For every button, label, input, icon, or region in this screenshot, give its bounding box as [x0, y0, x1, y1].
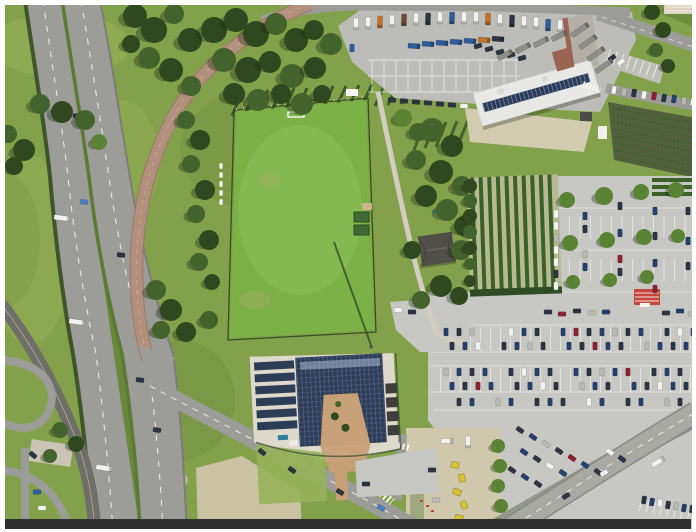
white-van [598, 126, 607, 139]
car [470, 368, 475, 376]
truck [389, 15, 394, 27]
car [424, 100, 432, 105]
car [684, 382, 689, 390]
car [574, 328, 579, 336]
truck-cab [450, 439, 453, 444]
mast-base [369, 345, 372, 348]
truck [437, 12, 442, 24]
tree [668, 182, 684, 198]
tree [199, 230, 219, 250]
car [33, 490, 41, 495]
car [645, 382, 650, 390]
tree [159, 58, 183, 82]
car [450, 342, 455, 350]
tree [463, 179, 477, 193]
car [574, 368, 579, 376]
vineyard-mid [466, 174, 562, 296]
tree [52, 422, 68, 438]
car [388, 97, 396, 102]
tree [164, 4, 184, 24]
car [583, 225, 588, 233]
tree [430, 275, 452, 297]
truck [533, 17, 538, 29]
truck-cab [466, 445, 471, 448]
car [476, 382, 481, 390]
truck [464, 38, 476, 44]
tree [160, 299, 182, 321]
bench [219, 181, 222, 186]
white-hut [346, 89, 358, 96]
bench [219, 172, 222, 177]
tree [441, 135, 463, 157]
tree [200, 311, 218, 329]
car [476, 342, 481, 350]
soccer-pitch [228, 97, 376, 349]
truck [436, 40, 448, 46]
tree [463, 209, 477, 223]
car [528, 382, 533, 390]
tree [562, 235, 578, 251]
car [457, 368, 462, 376]
tree [394, 109, 412, 127]
tree [75, 110, 95, 130]
tree [655, 22, 671, 38]
truck [441, 439, 453, 444]
tree [412, 291, 430, 309]
tree [30, 94, 50, 114]
truck-cab [485, 22, 490, 25]
car [686, 207, 691, 215]
tree [450, 287, 468, 305]
car [554, 270, 559, 278]
tree [636, 229, 652, 245]
car [600, 328, 605, 336]
satellite-map-canvas[interactable] [0, 0, 696, 532]
truck [485, 13, 490, 25]
car [153, 427, 162, 433]
tree [43, 449, 57, 463]
car [632, 382, 637, 390]
truck-cab [557, 29, 562, 32]
truck [408, 43, 420, 49]
car [613, 328, 618, 336]
car [676, 309, 684, 314]
tree [304, 20, 324, 40]
car [509, 328, 514, 336]
tree [247, 89, 269, 111]
truck-cab [437, 21, 442, 24]
tree [265, 13, 287, 35]
car [522, 368, 527, 376]
tree [599, 232, 615, 248]
car [444, 328, 449, 336]
car [408, 310, 416, 315]
car [686, 237, 691, 245]
car [626, 368, 631, 376]
yellow-machine [451, 461, 460, 468]
car [509, 398, 514, 406]
tree [559, 192, 575, 208]
tree [649, 43, 663, 57]
car [606, 382, 611, 390]
tree [463, 194, 477, 208]
tree [271, 84, 291, 104]
car [652, 368, 657, 376]
shed [362, 203, 372, 210]
tree [313, 85, 331, 103]
car [602, 310, 610, 315]
tree [146, 280, 166, 300]
tree [491, 479, 505, 493]
yellow-machine [458, 474, 465, 483]
car [80, 199, 89, 205]
truck [466, 436, 471, 448]
car [653, 232, 658, 240]
bench [219, 190, 222, 195]
car [436, 101, 444, 106]
car [686, 262, 691, 270]
tree [152, 321, 170, 339]
tree [320, 33, 342, 55]
truck [353, 18, 358, 30]
car [580, 342, 585, 350]
car [544, 310, 552, 315]
car [600, 368, 605, 376]
car [684, 342, 689, 350]
car [554, 282, 559, 290]
truck-cab [389, 24, 394, 27]
car [593, 382, 598, 390]
car [587, 328, 592, 336]
tree [176, 322, 196, 342]
car [580, 382, 585, 390]
car [412, 99, 420, 104]
truck-cab [533, 26, 538, 29]
dark-shed [580, 112, 592, 121]
truck-cab [353, 27, 358, 30]
tree [463, 241, 477, 255]
truck [365, 17, 370, 29]
tree [259, 51, 281, 73]
tree [436, 199, 458, 221]
car [587, 398, 592, 406]
bottom-dark-bar [5, 519, 691, 529]
tree [190, 253, 208, 271]
tree [403, 241, 421, 259]
car [678, 398, 683, 406]
tree [91, 134, 107, 150]
car [515, 342, 520, 350]
car [645, 342, 650, 350]
truck-cab [501, 37, 504, 42]
car [618, 229, 623, 237]
car [567, 342, 572, 350]
truck-cab [401, 23, 406, 26]
tree [633, 184, 649, 200]
truck-cab [545, 28, 550, 31]
truck-cab [461, 21, 466, 24]
tree [566, 275, 580, 289]
tree [204, 274, 220, 290]
car [665, 368, 670, 376]
tree [177, 111, 195, 129]
car [432, 498, 440, 503]
truck-cab [487, 38, 490, 43]
truck-cab [473, 21, 478, 24]
car [583, 263, 588, 271]
tree [212, 48, 236, 72]
car [665, 398, 670, 406]
truck-cab [449, 21, 454, 24]
truck [425, 13, 430, 25]
truck [461, 12, 466, 24]
car [470, 328, 475, 336]
car [548, 398, 553, 406]
truck-cab [67, 216, 71, 221]
tree [304, 57, 326, 79]
car [483, 368, 488, 376]
truck [422, 41, 434, 47]
car [428, 468, 436, 473]
tree [223, 83, 245, 105]
car [658, 342, 663, 350]
car [463, 342, 468, 350]
car [489, 382, 494, 390]
car [653, 285, 658, 293]
car [618, 202, 623, 210]
car [678, 368, 683, 376]
tree [429, 160, 453, 184]
car [653, 207, 658, 215]
car [515, 382, 520, 390]
car [554, 382, 559, 390]
car [618, 255, 623, 263]
truck [509, 15, 514, 27]
tree [671, 229, 685, 243]
tree [195, 180, 215, 200]
truck-cab [425, 22, 430, 25]
car [470, 398, 475, 406]
car [639, 398, 644, 406]
tree [122, 35, 140, 53]
car [535, 368, 540, 376]
truck [473, 12, 478, 24]
tree [51, 101, 73, 123]
car [528, 342, 533, 350]
car [653, 259, 658, 267]
car [350, 44, 355, 52]
truck-cab [413, 22, 418, 25]
bench [219, 163, 222, 168]
tree [406, 150, 426, 170]
car [619, 342, 624, 350]
tree [494, 499, 508, 513]
car [38, 506, 46, 511]
truck [545, 19, 550, 31]
car [509, 368, 514, 376]
truck [450, 39, 462, 45]
truck [377, 16, 382, 28]
tree [463, 225, 477, 239]
car [583, 250, 588, 258]
car [554, 246, 559, 254]
car [394, 308, 402, 313]
truck-cab [431, 42, 434, 47]
truck-cab [377, 25, 382, 28]
car [448, 102, 456, 107]
car [600, 398, 605, 406]
truck-cab [459, 40, 462, 45]
tree [595, 187, 613, 205]
car [658, 382, 663, 390]
car [541, 382, 546, 390]
tree [464, 275, 476, 287]
car [671, 342, 676, 350]
tree [415, 185, 437, 207]
car [502, 342, 507, 350]
truck [401, 14, 406, 26]
car [444, 368, 449, 376]
car [457, 328, 462, 336]
tree [190, 130, 210, 150]
truck [492, 36, 504, 42]
truck [557, 20, 562, 32]
tree [644, 4, 660, 20]
truck [449, 12, 454, 24]
car [535, 398, 540, 406]
truck [497, 14, 502, 26]
bench [219, 199, 222, 204]
tree [68, 436, 84, 452]
tree [640, 270, 654, 284]
tree [5, 157, 23, 175]
car [626, 398, 631, 406]
car [588, 311, 596, 316]
tree [181, 76, 201, 96]
car [573, 309, 581, 314]
tree [493, 459, 507, 473]
tree [182, 155, 200, 173]
car [548, 368, 553, 376]
truck-cab [365, 26, 370, 29]
car [678, 328, 683, 336]
car [554, 222, 559, 230]
car [362, 482, 370, 487]
car [460, 103, 468, 108]
car [593, 342, 598, 350]
tree [661, 59, 675, 73]
tree [491, 439, 505, 453]
car [639, 328, 644, 336]
truck-cab [521, 25, 526, 28]
tree [603, 273, 617, 287]
car [671, 382, 676, 390]
car [554, 234, 559, 242]
truck [478, 37, 490, 43]
car [554, 210, 559, 218]
court [354, 212, 369, 222]
truck [521, 16, 526, 28]
tree [409, 123, 427, 141]
car [117, 252, 126, 258]
car [583, 212, 588, 220]
car [618, 268, 623, 276]
truck [413, 13, 418, 25]
truck-cab [509, 24, 514, 27]
car [541, 342, 546, 350]
car [554, 258, 559, 266]
truck-cab [473, 39, 476, 44]
car [450, 382, 455, 390]
car [400, 98, 408, 103]
tree [464, 258, 476, 270]
car [561, 398, 566, 406]
car [626, 328, 631, 336]
car [561, 328, 566, 336]
tree [187, 205, 205, 223]
car [136, 377, 145, 383]
tree [138, 47, 160, 69]
truck-cab [445, 41, 448, 46]
car [613, 368, 618, 376]
car [496, 398, 501, 406]
car [558, 312, 566, 317]
truck-cab [417, 44, 420, 49]
car [522, 328, 527, 336]
car [463, 382, 468, 390]
car [606, 342, 611, 350]
car [662, 311, 670, 316]
car [587, 368, 592, 376]
truck-cab [497, 23, 502, 26]
car [665, 328, 670, 336]
car [457, 398, 462, 406]
car [535, 328, 540, 336]
court [354, 225, 369, 235]
